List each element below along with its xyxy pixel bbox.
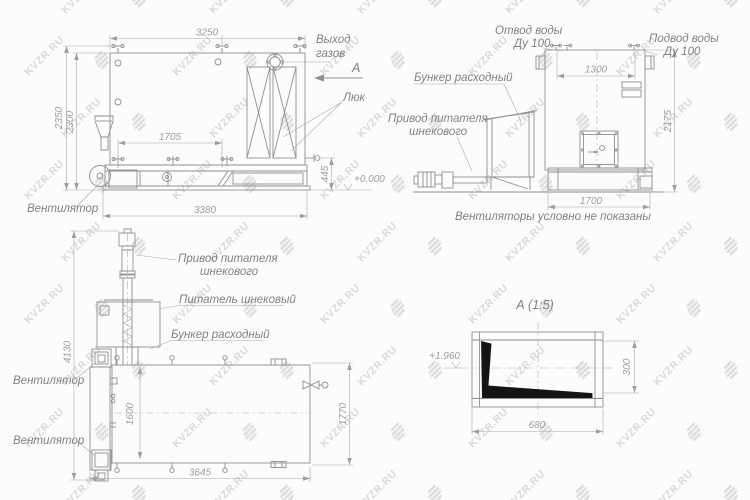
dimension-plan-outer: 1770 (312, 363, 353, 465)
fan-label: Вентилятор (27, 185, 99, 215)
dim-3645: 3645 (189, 468, 212, 479)
dim-1700: 1700 (580, 196, 603, 207)
label-bunker-front: Бункер расходный (414, 72, 513, 84)
feeder-label-plan: Питатель шнековый (159, 294, 296, 309)
drive-label-plan: Привод питателя шнекового (136, 253, 278, 278)
plan-bunker-neck (116, 347, 138, 365)
label-feeder: Питатель шнековый (179, 294, 296, 306)
label-inlet-line2: Ду 100 (662, 46, 701, 58)
label-gas-line2: газов (316, 48, 345, 60)
section-letter: А (351, 61, 360, 75)
drawing-canvas: 3250 2350 2300 1705 (0, 0, 750, 500)
dimension-base-width: 3380 (103, 191, 307, 219)
dimension-plan-length: 3645 (90, 467, 310, 482)
dimension-base-height: 445 +0.000 (310, 158, 385, 190)
bottom-valve-fittings (112, 154, 320, 166)
label-bunker-plan: Бункер расходный (171, 329, 270, 341)
dim-445: 445 (320, 165, 331, 182)
label-hatch: Люк (342, 92, 366, 104)
water-pipes (551, 44, 640, 50)
detail-title: А (1:5) (515, 298, 554, 312)
dim-1770: 1770 (338, 402, 349, 425)
dim-3380: 3380 (194, 205, 217, 216)
weld-seam-profile (482, 342, 593, 398)
dim-1600: 1600 (125, 402, 136, 425)
screw-drive (414, 172, 487, 188)
detail-view: А (1:5) +1.960 680 (429, 298, 639, 435)
label-drive-front-line2: шнекового (409, 126, 468, 138)
label-fan-side: Вентилятор (27, 203, 99, 215)
engineering-drawing: KVZR.RUKVZR.RUKVZR.RUKVZR.RUKVZR.RUKVZR.… (0, 0, 750, 500)
dim-2350: 2350 (54, 106, 65, 130)
dimension-top-width: 3250 (110, 28, 305, 51)
front-view: 1300 2175 1700 Отвод воды Ду 100 (388, 25, 719, 223)
dim-2175: 2175 (663, 109, 674, 133)
drive-label-front: Привод питателя шнекового (388, 113, 488, 171)
dim-2300: 2300 (65, 110, 76, 134)
dimension-mid-width: 1705 (118, 132, 222, 168)
bunker-label-plan: Бункер расходный (150, 329, 270, 349)
plan-fan-bottom (92, 450, 111, 481)
label-drive-front-line1: Привод питателя (388, 113, 488, 125)
base-frame (103, 165, 310, 190)
fan-bottom-label: Вентилятор (13, 435, 95, 456)
top-valve-fittings (112, 44, 306, 53)
fan-top-label: Вентилятор (13, 363, 95, 387)
dim-300: 300 (622, 358, 633, 375)
plan-drain-valve (303, 381, 328, 389)
hatch-label: Люк (283, 92, 366, 151)
dimension-detail-width: 680 (472, 409, 603, 435)
screw-feeder (97, 300, 160, 347)
dimension-heights: 2350 2300 (54, 46, 113, 190)
feed-bunker (484, 111, 537, 191)
dim-1705: 1705 (159, 132, 182, 143)
gas-outlet-flange (267, 54, 283, 70)
dim-680: 680 (529, 420, 546, 431)
dimension-pipe-spacing: 1300 (557, 52, 635, 79)
inspection-ports (115, 59, 221, 105)
plan-left-wall-details (110, 378, 117, 427)
level-mark-zero: +0.000 (354, 174, 385, 185)
dimension-front-height: 2175 (646, 50, 678, 192)
nameplate (622, 82, 641, 97)
plan-fan-top (92, 349, 111, 367)
water-inlet-label: Подвод воды Ду 100 (642, 33, 719, 58)
label-outlet-line1: Отвод воды (495, 25, 563, 37)
section-arrow: А (314, 61, 363, 82)
dim-1300: 1300 (585, 65, 608, 76)
label-inlet-line1: Подвод воды (649, 33, 719, 45)
label-fan-bottom: Вентилятор (13, 435, 85, 447)
level-mark-1960: +1.960 (429, 351, 460, 362)
furnace-door (580, 131, 618, 168)
detail-level-mark: +1.960 (429, 351, 462, 368)
plan-view: 4130 1600 1770 3645 (13, 229, 353, 482)
dimension-front-base: 1700 (548, 193, 650, 210)
boiler-plan (112, 365, 310, 463)
dim-4130: 4130 (63, 340, 74, 363)
dimension-detail-height: 300 (604, 341, 639, 393)
fan (90, 166, 138, 189)
label-outlet-line2: Ду 100 (512, 38, 551, 50)
front-base-frame (548, 168, 652, 190)
plan-screw-drive (119, 229, 135, 302)
heat-exchanger-panels (247, 67, 296, 158)
label-fan-top: Вентилятор (13, 375, 85, 387)
label-drive-plan-line1: Привод питателя (178, 253, 278, 265)
label-drive-plan-line2: шнекового (200, 266, 259, 278)
label-gas-line1: Выход (316, 34, 351, 46)
side-view: 3250 2350 2300 1705 (27, 28, 385, 220)
dim-3250: 3250 (196, 28, 219, 39)
note-fans-not-shown: Вентиляторы условно не показаны (455, 211, 651, 223)
